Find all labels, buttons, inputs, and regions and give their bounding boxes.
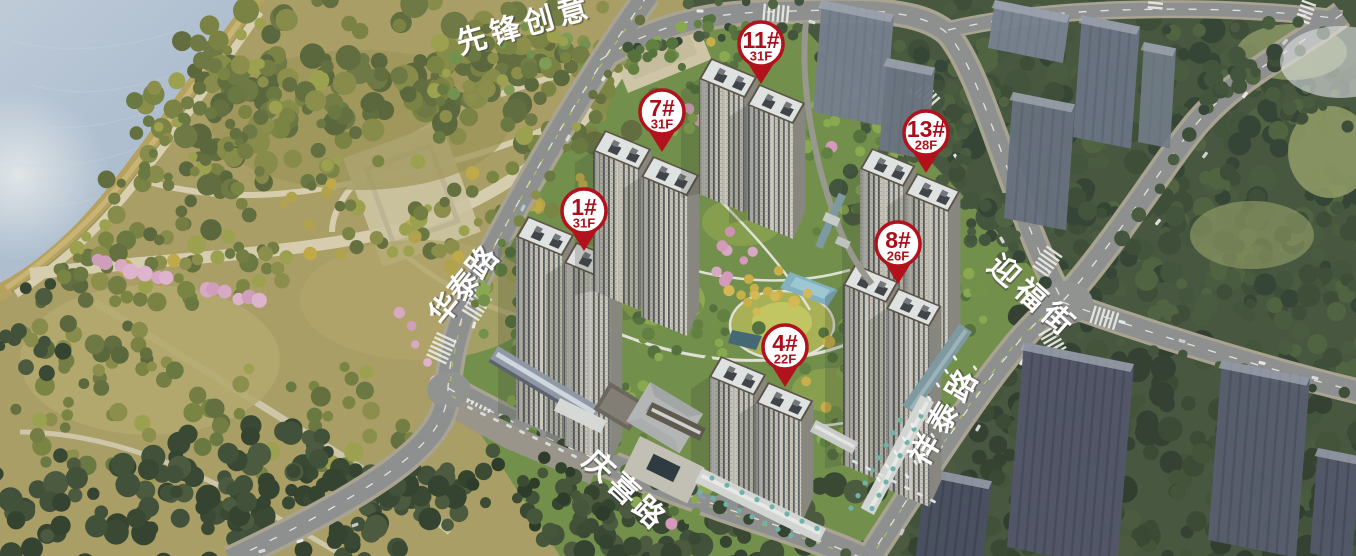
svg-text:26F: 26F	[887, 249, 909, 264]
svg-text:31F: 31F	[651, 117, 673, 132]
svg-text:31F: 31F	[750, 49, 772, 64]
svg-text:22F: 22F	[774, 352, 796, 367]
svg-text:28F: 28F	[915, 138, 937, 153]
svg-text:31F: 31F	[573, 216, 595, 231]
